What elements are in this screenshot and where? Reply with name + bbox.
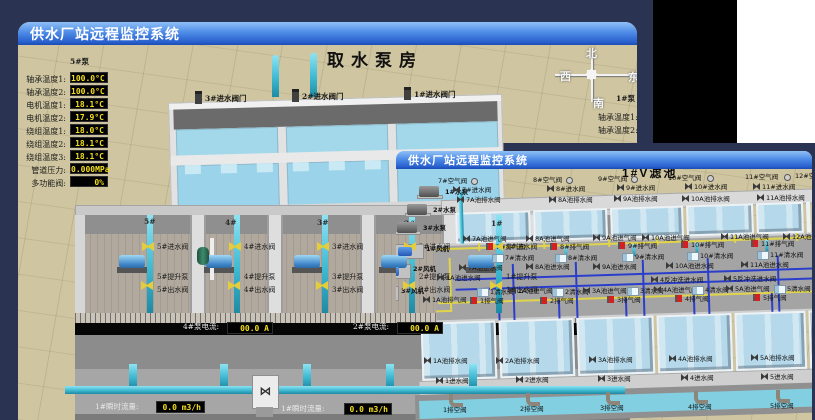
- sensor-value-box: 17.9°C: [70, 111, 108, 122]
- lift-pump-icon[interactable]: [119, 255, 145, 268]
- bay-riser-pipe[interactable]: [322, 215, 328, 313]
- bay-number-label: 3#: [317, 219, 329, 227]
- water-pump-icon[interactable]: [397, 222, 417, 233]
- readout-label: 4#泵电流:: [183, 323, 219, 331]
- valve-label: 11#排气阀: [761, 241, 794, 248]
- exhaust-valve-icon[interactable]: [618, 242, 625, 249]
- valve-label: 1A池排水阀: [433, 358, 468, 365]
- intake-riser-pipe[interactable]: [272, 55, 279, 97]
- valve-label: 1A池进水阀: [446, 275, 481, 282]
- valve-label: 5清水阀: [787, 286, 811, 293]
- front-window-frame: 1#V滤池 1#水泵2#水泵3#水泵1#风机2#风机3#风机7#空气阀8#空气阀…: [386, 143, 815, 420]
- valve-label: 4排空阀: [688, 404, 712, 411]
- sensor-row-label: 绕组温度3:: [20, 152, 66, 162]
- pumproom-left-wall: [75, 215, 85, 314]
- outlet-valve-label: 5#出水阀: [157, 287, 188, 295]
- equipment-label: 3#水泵: [423, 225, 446, 232]
- bay-riser-pipe[interactable]: [234, 215, 240, 313]
- valve-label: 3A池排水阀: [598, 357, 633, 364]
- compass-east-label: 东: [628, 69, 637, 85]
- valve-label: 4进水阀: [690, 375, 714, 382]
- equipment-label: 1#风机: [426, 246, 449, 253]
- filter-cell: [686, 203, 754, 236]
- valve-label: 2A池排水阀: [505, 358, 540, 365]
- valve-label: 3进水阀: [607, 376, 631, 383]
- sensor-row-label: 电机温度2:: [20, 113, 66, 123]
- background-window: [653, 0, 737, 145]
- lift-pump-label: 1#提升泵: [506, 274, 537, 282]
- exhaust-valve-icon[interactable]: [486, 243, 493, 250]
- valve-label: 1进水阀: [445, 378, 469, 385]
- scene-title-intake-pumphouse: 取水泵房: [327, 46, 423, 71]
- readout-label: 1#瞬时流量:: [281, 405, 325, 413]
- equipment-label: 2#风机: [413, 266, 436, 273]
- drain-elbow-icon[interactable]: [449, 394, 463, 407]
- intake-valve-icon[interactable]: [292, 89, 299, 102]
- lift-pump-label: 5#提升泵: [157, 274, 188, 282]
- sensor-row-label: 轴承温度2:: [598, 125, 637, 136]
- sensor-row-label: 轴承温度1:: [598, 112, 637, 123]
- back-window-title: 供水厂站远程监控系统: [30, 24, 180, 44]
- valve-label: 5A池排水阀: [760, 355, 795, 362]
- valve-label: 9A池进水阀: [602, 264, 637, 271]
- readout-label: 2#泵电流:: [353, 323, 389, 331]
- filter-cell: [756, 202, 804, 234]
- clean-water-valve-icon[interactable]: [627, 287, 639, 296]
- valve-label: 11#进水阀: [762, 184, 795, 191]
- inlet-valve-label: 4#进水阀: [244, 244, 275, 252]
- readout-value-box: 00.0 A: [227, 322, 273, 334]
- discharge-stub-pipe[interactable]: [129, 364, 137, 388]
- lift-pump-label: 3#提升泵: [332, 274, 363, 282]
- exhaust-valve-icon[interactable]: [681, 241, 688, 248]
- green-tank-icon[interactable]: [197, 247, 209, 265]
- valve-label: 11A池进水阀: [750, 262, 789, 269]
- clean-water-valve-icon[interactable]: [622, 253, 634, 262]
- clean-water-valve-icon[interactable]: [757, 251, 769, 260]
- valve-label: 10#清水阀: [700, 253, 733, 260]
- blower-icon[interactable]: [396, 267, 399, 276]
- valve-label: 5A池进气阀: [735, 286, 770, 293]
- valve-label: 4反冲洗进水阀: [660, 277, 703, 284]
- intake-valve-label: 3#进水阀门: [205, 95, 247, 103]
- compass-west-label: 西: [560, 68, 571, 84]
- bay-number-label: 5#: [144, 218, 156, 226]
- bay-number-label: 4#: [225, 219, 237, 227]
- equipment-label: 2#水泵: [433, 207, 456, 214]
- valve-label: 5排气阀: [763, 295, 787, 302]
- readout-value-box: 0.0 m3/h: [156, 401, 205, 413]
- valve-label: 8A池排水阀: [558, 197, 593, 204]
- sensor-value-box: 100.0°C: [70, 72, 108, 83]
- filter-cell: [806, 202, 811, 233]
- exhaust-valve-icon[interactable]: [550, 243, 557, 250]
- valve-label: 10#进水阀: [694, 184, 727, 191]
- intake-riser-pipe[interactable]: [310, 53, 317, 97]
- valve-label: 5反冲洗进水阀: [733, 276, 776, 283]
- valve-label: 4清水阀: [705, 287, 729, 294]
- readout-label: 1#瞬时流量:: [95, 403, 139, 411]
- valve-label: 7#进水阀: [462, 187, 491, 194]
- sensor-row-label: 绕组温度2:: [20, 139, 66, 149]
- valve-label: 11A池排水阀: [766, 195, 805, 202]
- filter-cell: [808, 311, 812, 369]
- valve-label: 3A池进气阀: [592, 288, 627, 295]
- clean-water-valve-icon[interactable]: [477, 288, 489, 297]
- back-window-titlebar[interactable]: 供水厂站远程监控系统: [18, 22, 637, 45]
- clean-water-valve-icon[interactable]: [687, 252, 699, 261]
- valve-label: 3排气阀: [617, 297, 641, 304]
- lift-pump-icon[interactable]: [294, 255, 320, 268]
- sensor-value-box: 18.1°C: [70, 137, 108, 148]
- air-valve-icon[interactable]: [631, 176, 638, 183]
- water-pump-icon[interactable]: [407, 204, 427, 215]
- valve-label: 7#清水阀: [505, 255, 534, 262]
- air-branch-pipe: [478, 243, 480, 251]
- bay-number-label: 1#: [491, 220, 503, 228]
- compass-south-label: 南: [593, 95, 604, 111]
- clean-water-valve-icon[interactable]: [692, 286, 704, 295]
- front-window-titlebar[interactable]: 供水厂站远程监控系统: [396, 151, 812, 169]
- tank-weir-tab: [365, 160, 381, 169]
- lift-pump-icon[interactable]: [206, 255, 232, 268]
- outlet-valve-label: 3#出水阀: [332, 287, 363, 295]
- readout-value-box: 0.0 m3/h: [344, 403, 392, 415]
- sensor-value-box: 18.1°C: [70, 150, 108, 161]
- drain-elbow-icon[interactable]: [526, 393, 540, 406]
- air-valve-icon[interactable]: [471, 178, 478, 185]
- lift-pump-icon[interactable]: [468, 255, 494, 268]
- valve-label: 2进水阀: [525, 377, 549, 384]
- inlet-valve-label: 5#进水阀: [157, 244, 188, 252]
- discharge-stub-pipe[interactable]: [220, 364, 228, 388]
- outlet-valve-label: 4#出水阀: [244, 287, 275, 295]
- valve-label: 1A池排气阀: [432, 297, 467, 304]
- tank-weir-tab: [329, 161, 345, 170]
- valve-label: 2A池进气阀: [518, 288, 553, 295]
- tank-weir-tab: [185, 165, 201, 174]
- valve-label: 10#排气阀: [691, 242, 724, 249]
- valve-label: 8#空气阀: [533, 177, 562, 184]
- filter-cell: [577, 316, 656, 376]
- exhaust-valve-icon[interactable]: [470, 297, 477, 304]
- valve-label: 1排气阀: [480, 298, 504, 305]
- sensor-value-box: 18.1°C: [70, 98, 108, 109]
- filter-cell: [499, 318, 576, 378]
- valve-label: 8#清水阀: [568, 255, 597, 262]
- valve-label: 8#排气阀: [560, 244, 589, 251]
- blower-icon[interactable]: [398, 247, 412, 256]
- valve-label: 4A池排水阀: [678, 356, 713, 363]
- exhaust-valve-icon[interactable]: [753, 294, 760, 301]
- valve-label: 11#清水阀: [770, 252, 803, 259]
- valve-label: 12A池进气阀: [792, 234, 812, 241]
- bay-riser-pipe[interactable]: [147, 215, 153, 313]
- lift-pump-icon[interactable]: [381, 255, 407, 268]
- valve-label: 2排气阀: [550, 298, 574, 305]
- valve-label: 10#空气阀: [668, 175, 701, 182]
- intake-valve-icon[interactable]: [195, 91, 202, 104]
- desktop: 取水泵房 5#泵 1#泵 轴承温度1:100.0°C轴承温度2:100.0°C电…: [0, 0, 815, 420]
- clean-water-valve-icon[interactable]: [555, 254, 567, 263]
- valve-label: 9#清水阀: [635, 254, 664, 261]
- valve-label: 9#进水阀: [626, 185, 655, 192]
- valve-label: 7A池排水阀: [466, 197, 501, 204]
- air-valve-icon[interactable]: [566, 177, 573, 184]
- compass-north-label: 北: [586, 45, 597, 61]
- exhaust-valve-icon[interactable]: [751, 240, 758, 247]
- discharge-stub-pipe[interactable]: [386, 364, 394, 388]
- valve-label: 7#空气阀: [438, 178, 467, 185]
- valve-label: 8A池进水阀: [535, 264, 570, 271]
- valve-label: 5进水阀: [770, 374, 794, 381]
- readout-value-box: 00.0 A: [397, 322, 443, 334]
- sensor-value-box: 0.000MPa: [70, 163, 108, 174]
- desktop-white-area: [737, 0, 815, 145]
- bay-divider-wall: [267, 215, 283, 314]
- discharge-stub-pipe[interactable]: [303, 364, 311, 388]
- valve-label: 3排空阀: [600, 405, 624, 412]
- valve-label: 9#排气阀: [628, 243, 657, 250]
- valve-label: 5排空阀: [770, 403, 794, 410]
- sensor-row-label: 轴承温度1:: [20, 74, 66, 84]
- butterfly-valve-box[interactable]: ⋈: [252, 375, 279, 409]
- valve-label: 11#空气阀: [745, 174, 778, 181]
- sensor-value-box: 100.0°C: [70, 85, 108, 96]
- intake-valve-icon[interactable]: [404, 87, 411, 100]
- sensor-value-box: 0%: [70, 176, 108, 187]
- exhaust-valve-icon[interactable]: [607, 296, 614, 303]
- intake-valve-label: 2#进水阀门: [302, 93, 344, 101]
- clean-water-valve-icon[interactable]: [552, 288, 564, 297]
- sensor-row-label: 电机温度1:: [20, 100, 66, 110]
- valve-label: 4排气阀: [685, 296, 709, 303]
- pump1-panel-title: 1#泵: [616, 95, 635, 103]
- front-window-filter: 1#V滤池 1#水泵2#水泵3#水泵1#风机2#风机3#风机7#空气阀8#空气阀…: [396, 151, 812, 420]
- exhaust-valve-icon[interactable]: [675, 295, 682, 302]
- valve-label: 10A池进水阀: [675, 263, 714, 270]
- pump5-panel-title: 5#泵: [70, 58, 89, 66]
- filter-cell: [656, 313, 733, 373]
- valve-label: 9A池排水阀: [623, 196, 658, 203]
- drain-elbow-icon[interactable]: [694, 391, 708, 404]
- inlet-valve-label: 3#进水阀: [332, 244, 363, 252]
- discharge-stub-pipe[interactable]: [469, 364, 477, 388]
- sensor-value-box: 18.0°C: [70, 124, 108, 135]
- sensor-row-label: 绕组温度1:: [20, 126, 66, 136]
- exhaust-valve-icon[interactable]: [540, 297, 547, 304]
- tank-weir-tab: [257, 163, 273, 172]
- drain-elbow-icon[interactable]: [606, 392, 620, 405]
- clean-water-valve-icon[interactable]: [492, 254, 504, 263]
- compass-star: [587, 70, 596, 79]
- equipment-platform: [396, 286, 399, 301]
- clean-water-valve-icon[interactable]: [774, 285, 786, 294]
- sensor-row-label: 轴承温度2:: [20, 87, 66, 97]
- intake-valve-label: 1#进水阀门: [414, 91, 456, 99]
- bay-divider-wall: [360, 215, 376, 314]
- front-window-title: 供水厂站远程监控系统: [408, 152, 528, 168]
- valve-label: 1排空阀: [443, 407, 467, 414]
- water-pump-icon[interactable]: [419, 186, 439, 197]
- drain-elbow-icon[interactable]: [776, 390, 790, 403]
- butterfly-valve-tail: [256, 407, 273, 417]
- valve-label: 10A池排水阀: [691, 196, 730, 203]
- sensor-row-label: 管道压力:: [20, 165, 66, 175]
- lift-pump-label: 4#提升泵: [244, 274, 275, 282]
- valve-label: 8#进水阀: [556, 186, 585, 193]
- tank-weir-tab: [221, 164, 237, 173]
- valve-label: 12#空气阀: [795, 173, 812, 180]
- discharge-main-pipe[interactable]: [65, 386, 625, 394]
- sensor-row-label: 多功能阀:: [20, 178, 66, 188]
- valve-label: 9#空气阀: [598, 176, 627, 183]
- filter-scene: 1#V滤池 1#水泵2#水泵3#水泵1#风机2#风机3#风机7#空气阀8#空气阀…: [396, 151, 812, 420]
- tank-weir-tab: [293, 162, 309, 171]
- valve-label: 2排空阀: [520, 406, 544, 413]
